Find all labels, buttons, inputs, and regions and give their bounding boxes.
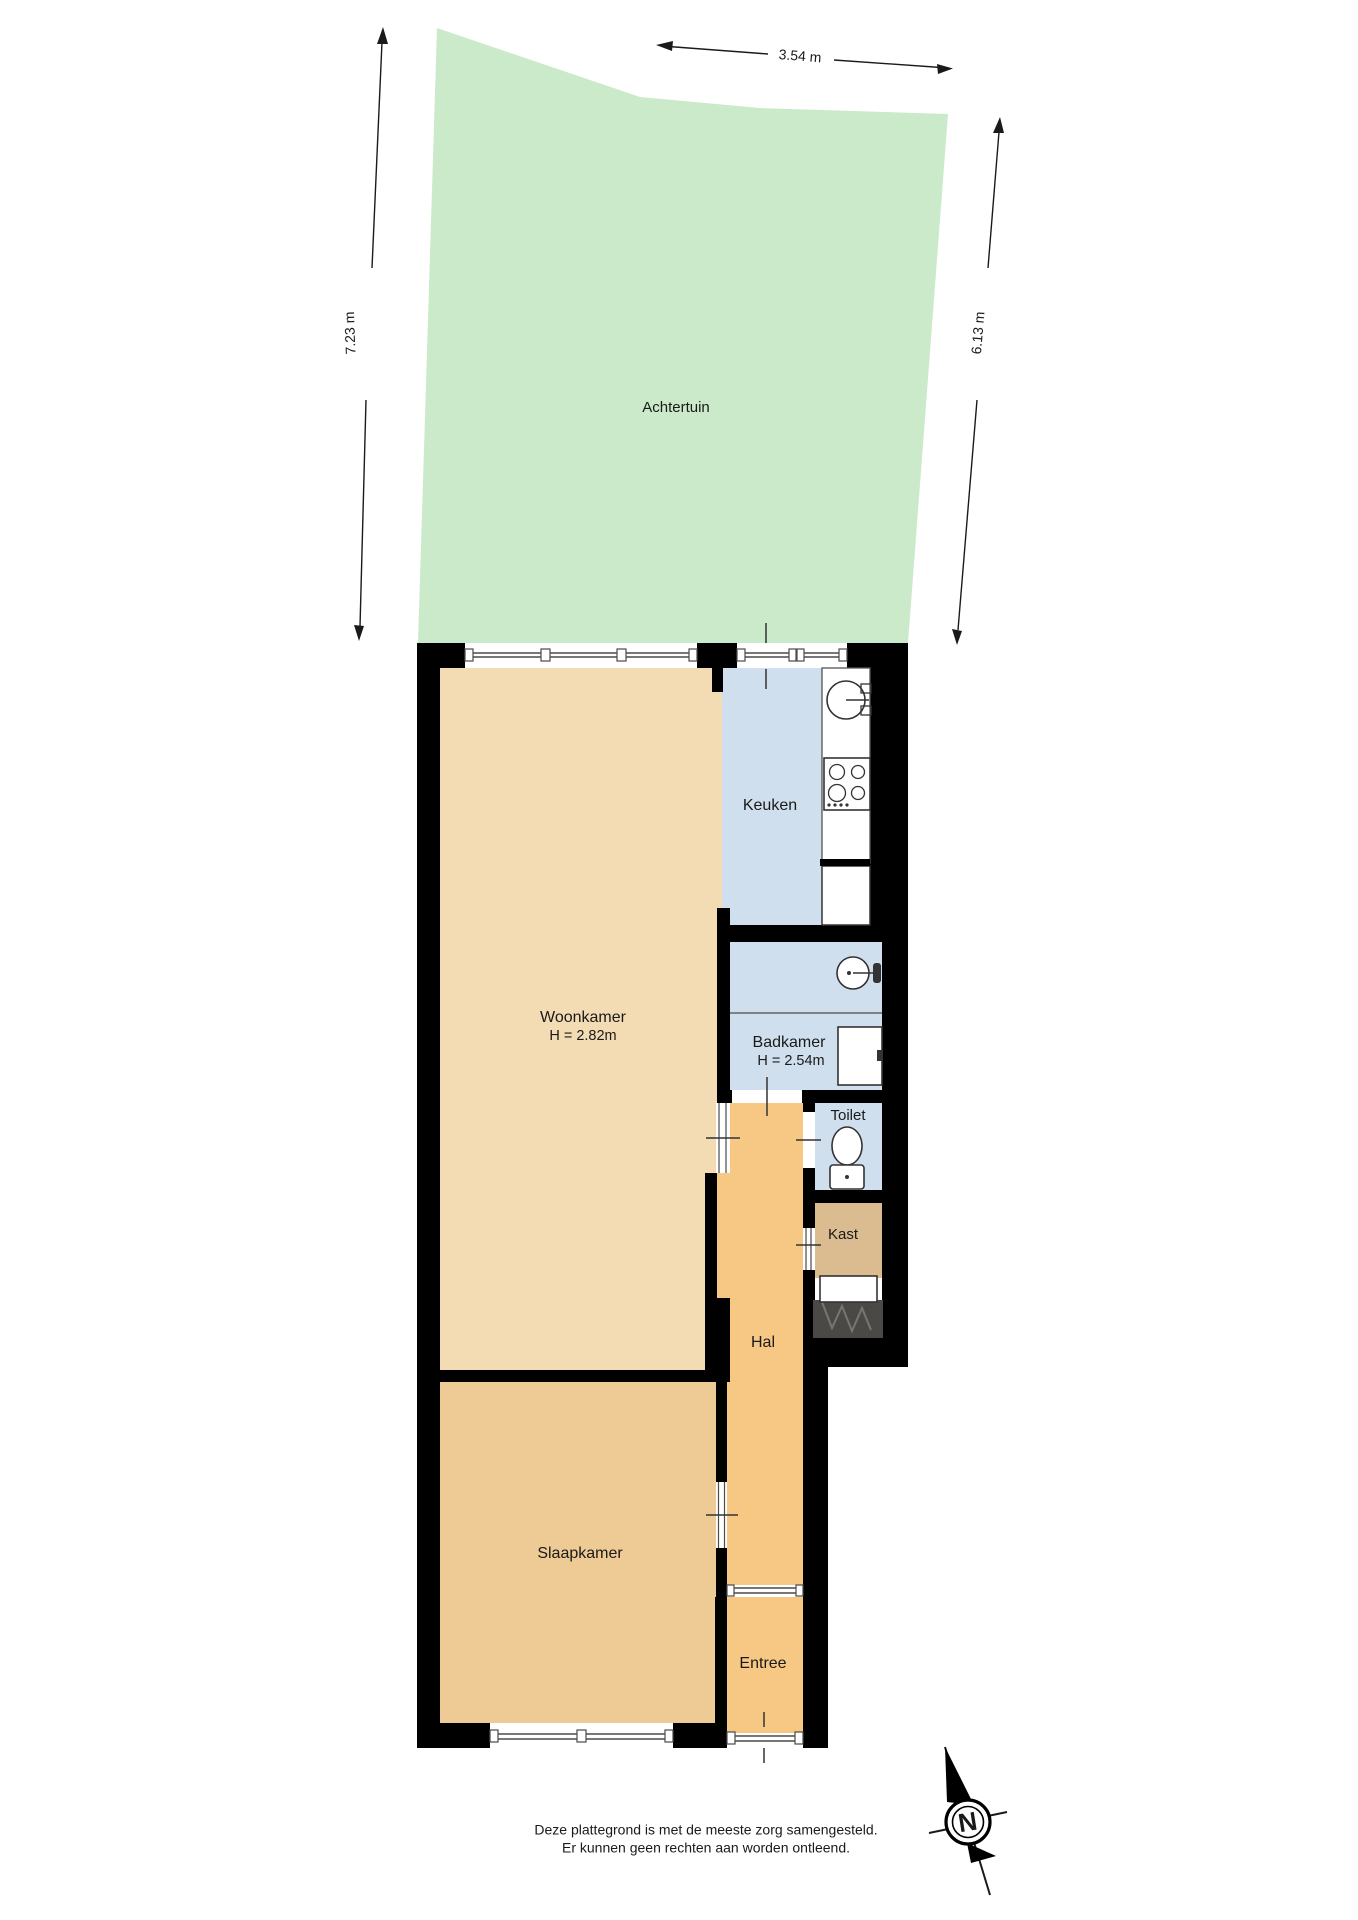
garden-area xyxy=(418,28,948,643)
dimension-left-label: 7.23 m xyxy=(341,311,358,354)
badkamer-label: Badkamer xyxy=(753,1034,827,1051)
woonkamer-label: Woonkamer xyxy=(540,1009,627,1026)
shower-icon xyxy=(838,1027,883,1085)
hal-label: Hal xyxy=(751,1334,775,1351)
compass: N xyxy=(929,1747,1007,1895)
slaapkamer-window xyxy=(490,1727,673,1745)
toilet-icon xyxy=(830,1127,864,1189)
dimension-top-label: 3.54 m xyxy=(778,46,822,65)
kast-label: Kast xyxy=(828,1226,859,1243)
stove-icon xyxy=(824,758,870,810)
dimension-top: 3.54 m xyxy=(656,41,953,74)
compass-north-needle xyxy=(945,1747,974,1805)
stairs-niche xyxy=(813,1276,883,1338)
kitchen-counter xyxy=(820,668,871,925)
badkamer-height-label: H = 2.54m xyxy=(757,1053,824,1069)
disclaimer-line2: Er kunnen geen rechten aan worden ontlee… xyxy=(562,1840,850,1856)
dimension-right: 6.13 m xyxy=(952,117,1004,645)
garden-label: Achtertuin xyxy=(642,399,710,416)
slaapkamer-label: Slaapkamer xyxy=(537,1545,623,1562)
toilet-label: Toilet xyxy=(830,1107,866,1124)
dimension-left: 7.23 m xyxy=(341,27,388,641)
hal-entree-window xyxy=(727,1585,803,1597)
disclaimer-line1: Deze plattegrond is met de meeste zorg s… xyxy=(534,1822,877,1838)
compass-south-fin xyxy=(967,1843,996,1863)
floorplan-page: Achtertuin 3.54 m 7.23 m 6.13 m xyxy=(0,0,1358,1920)
keuken-label: Keuken xyxy=(743,797,797,814)
woonkamer-front-window xyxy=(465,644,697,668)
keuken-window xyxy=(737,644,847,668)
dimension-right-label: 6.13 m xyxy=(968,311,988,355)
woonkamer-height-label: H = 2.82m xyxy=(549,1028,616,1044)
floorplan-svg: Achtertuin 3.54 m 7.23 m 6.13 m xyxy=(0,0,1358,1920)
entree-label: Entree xyxy=(739,1655,786,1672)
